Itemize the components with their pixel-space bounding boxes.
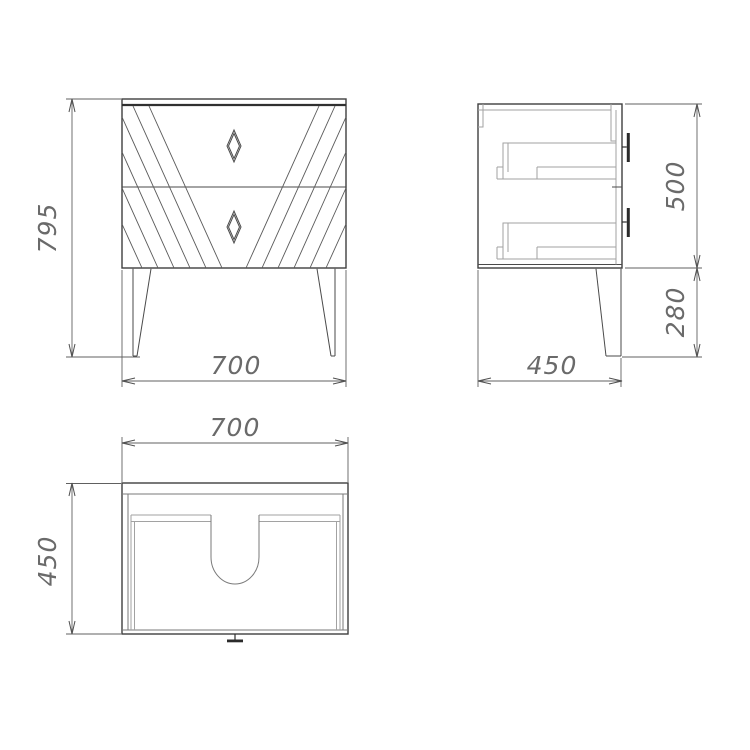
furniture-drawing: 795 700 bbox=[0, 0, 750, 750]
dim-top-depth: 450 bbox=[33, 483, 121, 634]
dim-side-leg-height: 280 bbox=[622, 268, 702, 357]
dim-label-side-depth: 450 bbox=[527, 351, 578, 380]
side-cabinet-outline bbox=[478, 104, 622, 268]
side-view bbox=[478, 104, 630, 356]
dim-side-depth: 450 bbox=[478, 270, 622, 387]
top-drawer-outline bbox=[131, 515, 340, 630]
dim-label-front-height: 795 bbox=[33, 203, 62, 254]
side-front-rail bbox=[611, 104, 616, 141]
front-view bbox=[122, 99, 346, 356]
side-handle-top-icon bbox=[622, 133, 630, 162]
side-handle-bottom-icon bbox=[622, 208, 630, 237]
dim-label-side-leg-height: 280 bbox=[661, 287, 690, 338]
top-view bbox=[122, 483, 348, 642]
dim-label-side-body-height: 500 bbox=[661, 161, 690, 212]
top-handle-icon bbox=[227, 634, 243, 642]
dim-label-front-width: 700 bbox=[211, 351, 262, 380]
top-outline bbox=[122, 483, 348, 634]
dim-top-width: 700 bbox=[122, 413, 348, 482]
side-back-rail bbox=[478, 104, 483, 127]
diamond-handle-bottom-icon bbox=[227, 211, 241, 243]
technical-drawing-canvas: 795 700 bbox=[0, 0, 750, 750]
dim-label-top-width: 700 bbox=[210, 413, 261, 442]
side-drawer-box-top bbox=[497, 143, 616, 179]
dim-side-body-height: 500 bbox=[625, 104, 702, 268]
dim-label-top-depth: 450 bbox=[33, 536, 62, 587]
front-leg-left bbox=[133, 269, 151, 356]
dim-front-width: 700 bbox=[122, 270, 346, 387]
front-leg-right bbox=[317, 269, 335, 356]
diamond-handle-top-icon bbox=[227, 130, 241, 162]
plumbing-cutout bbox=[211, 515, 259, 584]
side-leg bbox=[596, 269, 621, 356]
side-drawer-box-bottom bbox=[497, 223, 616, 259]
